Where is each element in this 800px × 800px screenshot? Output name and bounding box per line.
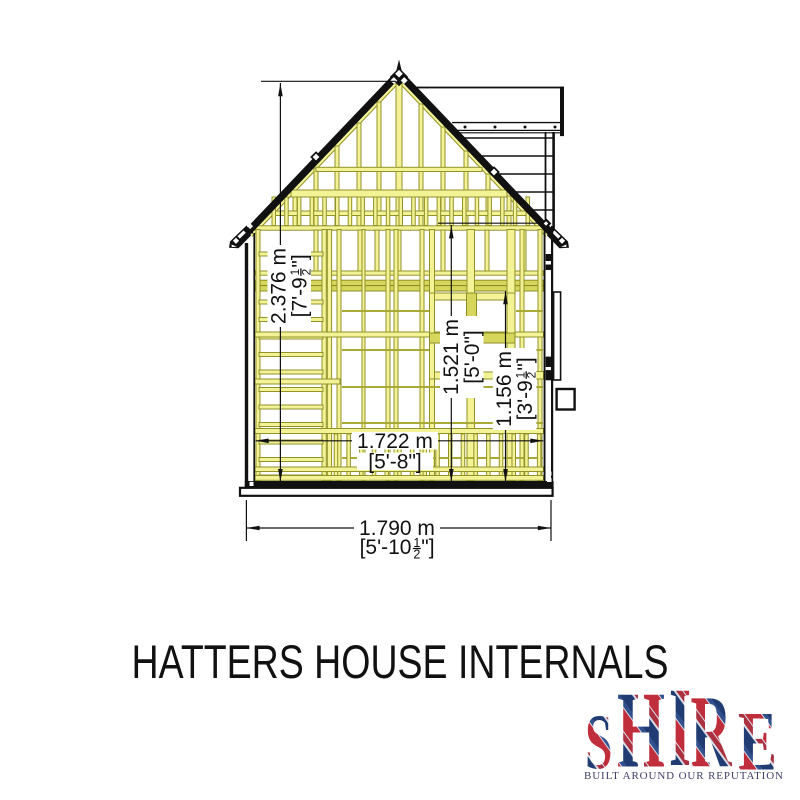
svg-text:2: 2 (299, 269, 313, 276)
svg-text:1.521 m: 1.521 m (440, 319, 463, 395)
svg-text:"]: "] (421, 536, 434, 559)
svg-text:BUILT AROUND OUR REPUTATION: BUILT AROUND OUR REPUTATION (584, 770, 783, 782)
svg-text:"]: "] (289, 254, 312, 267)
svg-text:HATTERS HOUSE INTERNALS: HATTERS HOUSE INTERNALS (132, 635, 669, 688)
svg-text:[5'-0"]: [5'-0"] (461, 330, 484, 383)
svg-text:2.376 m: 2.376 m (268, 248, 291, 324)
svg-text:[3'-9: [3'-9 (514, 380, 537, 420)
svg-text:[5'-10: [5'-10 (360, 536, 412, 559)
svg-text:"]: "] (514, 357, 537, 370)
svg-text:2: 2 (525, 372, 539, 379)
svg-text:[5'-8"]: [5'-8"] (368, 451, 421, 474)
svg-text:2: 2 (413, 548, 420, 562)
svg-text:1.156 m: 1.156 m (493, 351, 516, 427)
svg-text:[7'-9: [7'-9 (289, 277, 312, 317)
